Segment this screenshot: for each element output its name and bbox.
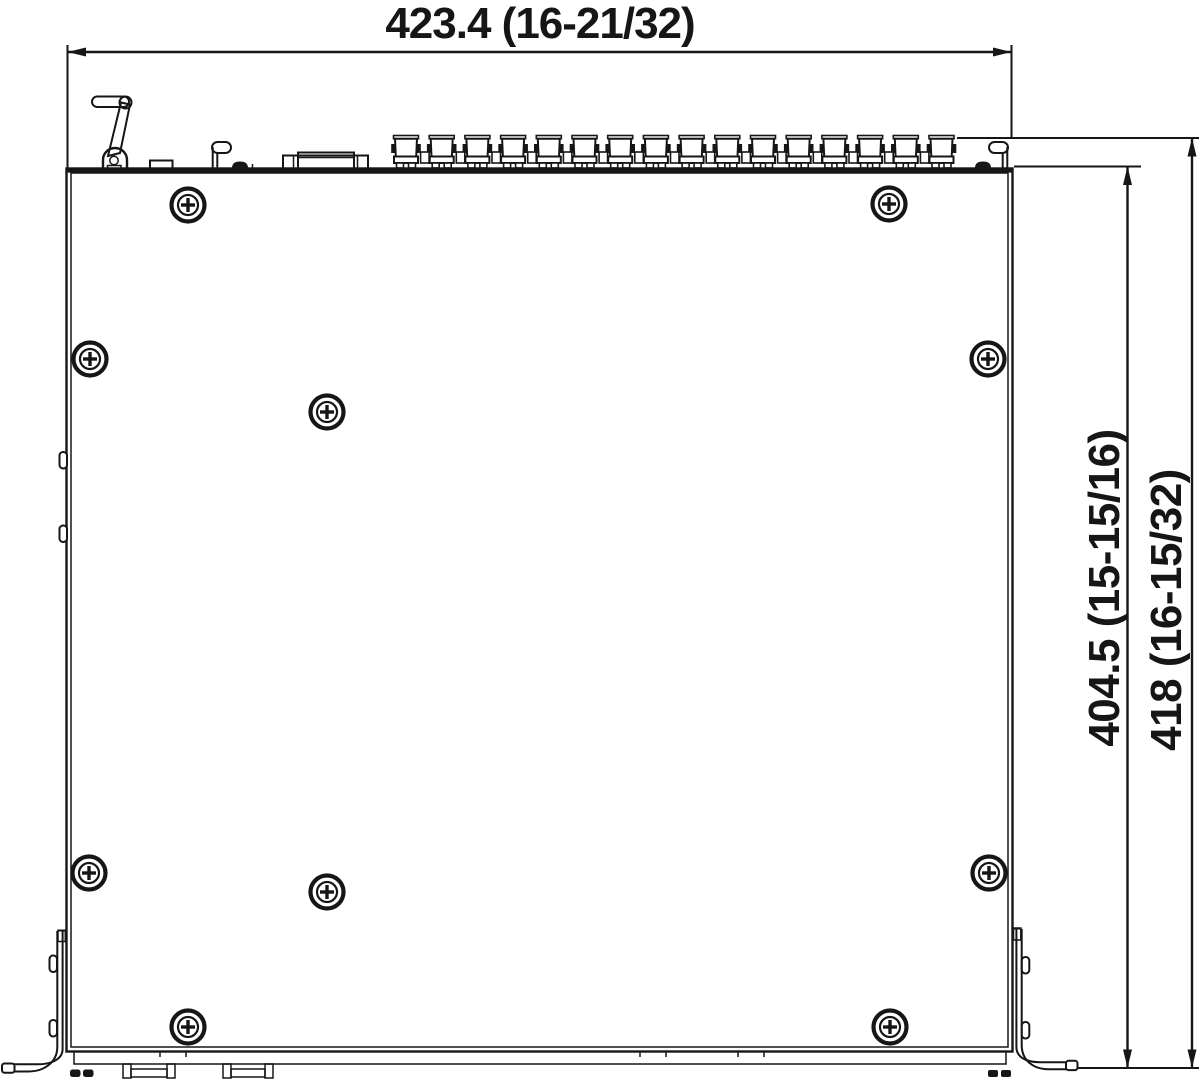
screw-icon <box>973 857 1006 890</box>
arrow-left-icon <box>68 48 87 57</box>
screw-icon <box>74 343 107 376</box>
device-body <box>67 169 1013 1052</box>
screw-icon <box>73 857 106 890</box>
depth-body-dimension-label: 404.5 (15-15/16) <box>1080 429 1129 746</box>
screw-icon <box>172 189 205 222</box>
screw-icon <box>972 343 1005 376</box>
chassis-screws <box>73 188 1006 1044</box>
screw-icon <box>311 396 344 429</box>
antenna-lever <box>92 97 132 171</box>
arrow-down-icon <box>1123 1050 1132 1069</box>
depth-dimension-body: 404.5 (15-15/16) <box>1014 167 1141 1069</box>
bottom-front-strip <box>74 1052 1006 1064</box>
wire-hook-right <box>989 142 1008 170</box>
arrow-up-icon <box>1188 138 1197 157</box>
screw-icon <box>873 188 906 221</box>
rack-ear-left <box>2 931 66 1073</box>
dimension-drawing-svg: 423.4 (16-21/32) 404.5 (15-15/16) 418 (1… <box>0 0 1200 1080</box>
wire-hook-left <box>212 142 231 170</box>
arrow-up-icon <box>1123 167 1132 186</box>
width-dimension-label: 423.4 (16-21/32) <box>385 0 694 48</box>
depth-overall-dimension-label: 418 (16-15/32) <box>1142 469 1191 751</box>
screw-icon <box>172 1011 205 1044</box>
screw-icon <box>311 876 344 909</box>
rack-ear-right <box>1013 928 1078 1070</box>
depth-dimension-overall: 418 (16-15/32) <box>957 138 1199 1068</box>
technical-drawing-page: 423.4 (16-21/32) 404.5 (15-15/16) 418 (1… <box>0 0 1200 1080</box>
rear-panel-connectors <box>391 136 956 169</box>
bottom-feet <box>70 1064 1011 1078</box>
arrow-down-icon <box>1188 1050 1197 1069</box>
arrow-right-icon <box>993 48 1012 57</box>
rear-button-right <box>975 162 991 169</box>
screw-icon <box>874 1011 907 1044</box>
